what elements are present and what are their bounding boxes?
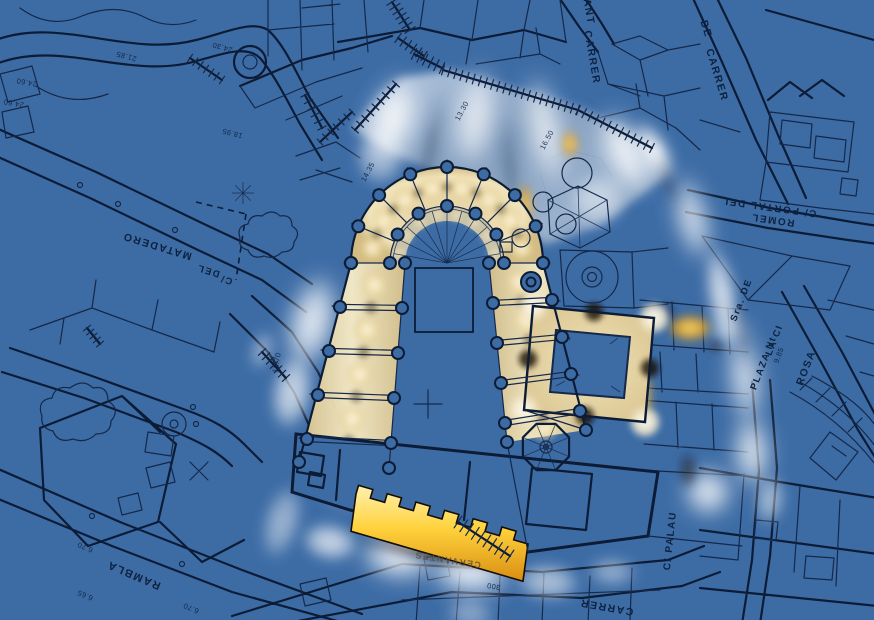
column [392,229,404,241]
bay-light [338,404,368,434]
column [490,229,502,241]
column [441,200,453,212]
column [530,220,542,232]
presbytery [415,268,473,332]
column [537,257,549,269]
column [580,424,592,436]
starburst-mark [232,182,254,204]
bay-light [359,235,385,261]
bay-light [449,175,475,201]
bay-light [345,359,375,389]
bay-light [350,391,362,403]
column [498,257,510,269]
column [399,257,411,269]
light-pool [678,450,698,490]
column [396,302,408,314]
column [495,377,507,389]
column [413,208,425,220]
column [441,161,453,173]
column [352,220,364,232]
light-pool [706,338,726,354]
column [501,436,513,448]
bay-light [352,315,382,345]
column [487,297,499,309]
column [392,347,404,359]
column [478,168,490,180]
column [323,345,335,357]
column [509,189,521,201]
site-plan-map: Cathedral plan with illuminated bays, cl… [0,0,874,620]
column [373,189,385,201]
light-pool [561,130,579,158]
column [301,433,313,445]
column [546,294,558,306]
great-pillar-core [527,278,536,287]
column [384,257,396,269]
column [293,456,305,468]
column [383,462,395,474]
light-pool [568,172,628,228]
column [574,405,586,417]
bay-light [360,270,390,300]
column [483,257,495,269]
bay-light [419,175,445,201]
column [312,389,324,401]
column [388,392,400,404]
column [556,331,568,343]
column [334,301,346,313]
column [565,368,577,380]
bay-light [365,302,377,314]
column [470,208,482,220]
column [345,257,357,269]
column [404,168,416,180]
column [491,337,503,349]
bay-light [358,346,370,358]
blueprint-svg: SANTCARRERDECARRERC/ PORTAL DELROMELPLAZ… [0,0,874,620]
column [385,437,397,449]
column [499,417,511,429]
